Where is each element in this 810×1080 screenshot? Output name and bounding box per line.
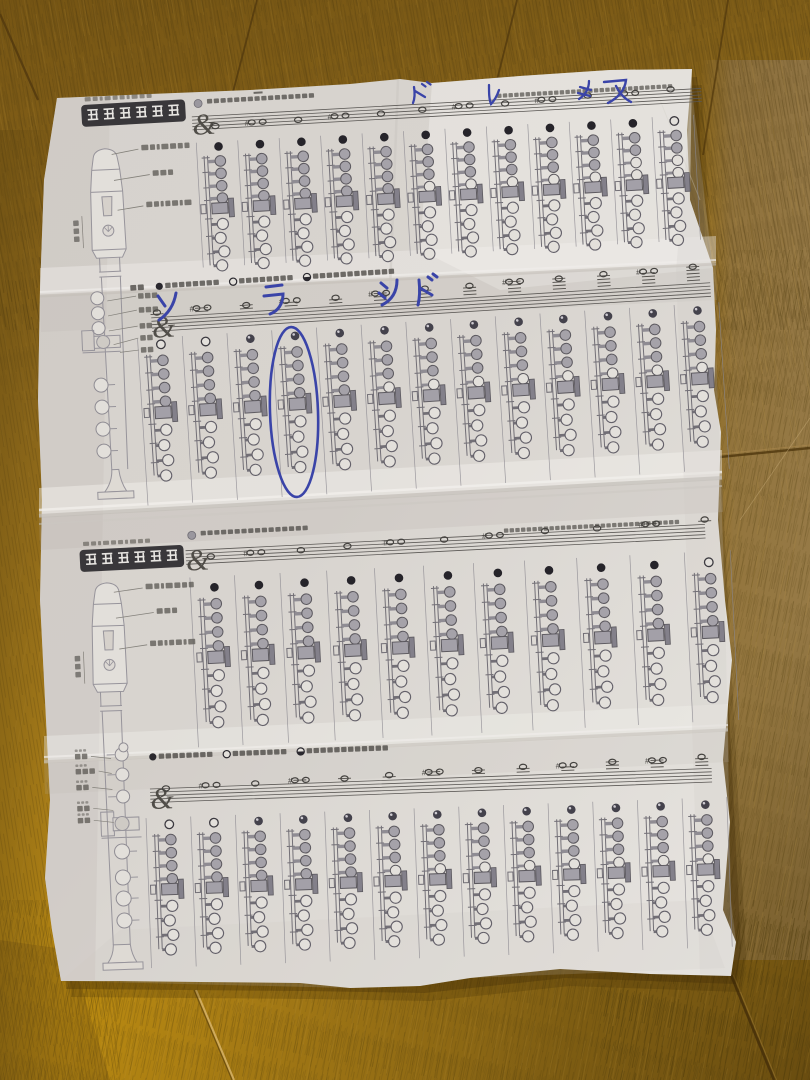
- svg-text:&: &: [185, 544, 211, 578]
- svg-text:&: &: [191, 108, 217, 142]
